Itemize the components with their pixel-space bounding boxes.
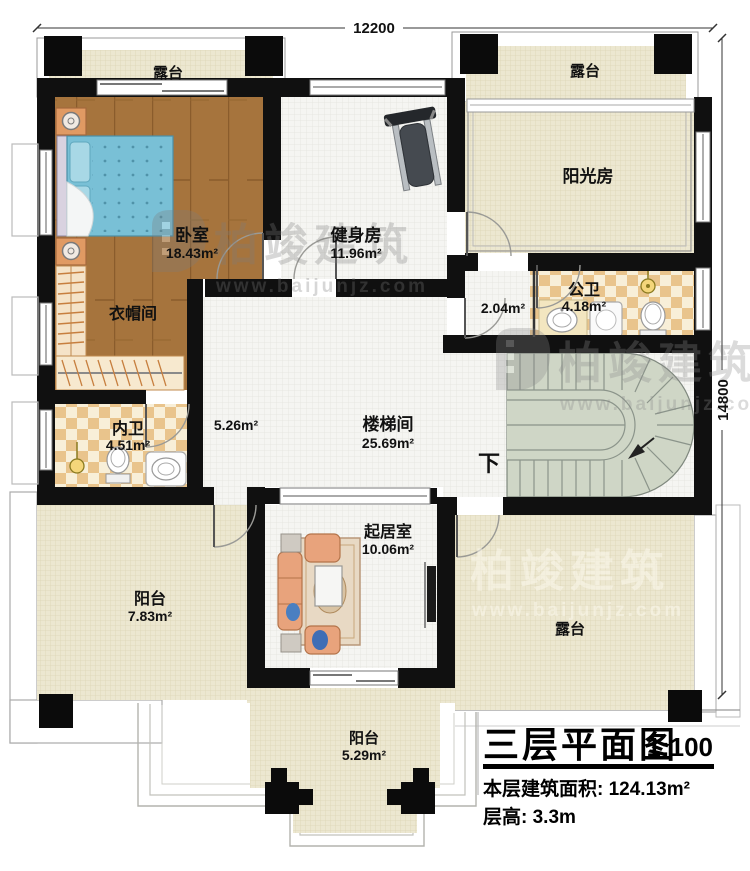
gym-window	[310, 80, 445, 95]
nightstand-bottom	[56, 238, 86, 265]
floor-plan-drawing: 柏竣建筑 www.baijunjz.com 柏竣建筑 www.baijunjz.…	[0, 0, 750, 871]
room-label-terrace-top-left: 露台	[153, 64, 183, 82]
cloakroom-window-left	[12, 297, 52, 375]
svg-text:柏竣建筑: 柏竣建筑	[214, 221, 414, 270]
stair-hall-floor	[203, 297, 447, 487]
room-label-living-room: 起居室	[363, 522, 412, 541]
floor-area-line: 本层建筑面积: 124.13m²	[483, 777, 690, 800]
balcony-bottom-floor	[138, 688, 476, 846]
room-area-stair-hall: 25.69m²	[362, 435, 414, 451]
plan-scale: 1:100	[647, 732, 714, 762]
room-area-corridor: 5.26m²	[214, 417, 259, 433]
room-area-public-bath: 4.18m²	[562, 298, 607, 314]
room-area-vestibule: 2.04m²	[481, 300, 526, 316]
terrace-sliding-door	[97, 80, 227, 95]
sunroom-top-glass	[467, 99, 694, 112]
room-label-terrace-top-right: 露台	[570, 62, 600, 80]
room-area-living-room: 10.06m²	[362, 541, 414, 557]
svg-text:www.baijunjz.com: www.baijunjz.com	[215, 276, 428, 297]
bedroom-window-left	[12, 144, 52, 236]
living-room-sliding-door	[310, 671, 398, 685]
stair-direction-label: 下	[478, 451, 500, 476]
room-area-gym: 11.96m²	[330, 245, 382, 261]
room-label-balcony-bottom: 阳台	[349, 729, 379, 747]
closet-shelving	[56, 266, 86, 356]
room-label-public-bath: 公卫	[568, 281, 600, 299]
room-area-balcony-left: 7.83m²	[128, 608, 173, 624]
room-label-private-bath: 内卫	[112, 419, 144, 438]
svg-text:www.baijunjz.com: www.baijunjz.com	[471, 600, 684, 621]
watermark-bottom: 柏竣建筑 www.baijunjz.com	[470, 547, 684, 621]
nightstand-top	[56, 108, 86, 135]
living-room-top-window	[280, 488, 430, 504]
room-label-cloakroom: 衣帽间	[109, 304, 157, 323]
room-area-private-bath: 4.51m²	[106, 437, 151, 453]
room-label-sunroom: 阳光房	[563, 166, 614, 186]
room-label-gym: 健身房	[331, 225, 382, 245]
svg-text:12200: 12200	[353, 20, 395, 37]
room-label-balcony-left: 阳台	[134, 589, 166, 608]
floor-height-line: 层高: 3.3m	[483, 805, 576, 828]
wardrobe-rack	[56, 356, 184, 390]
room-area-bedroom: 18.43m²	[166, 245, 218, 261]
title-underline	[483, 764, 714, 769]
title-block: 三层平面图 1:100 本层建筑面积: 124.13m² 层高: 3.3m	[483, 724, 714, 828]
room-label-stair-hall: 楼梯间	[363, 414, 414, 434]
floor-plan-page: 柏竣建筑 www.baijunjz.com 柏竣建筑 www.baijunjz.…	[0, 0, 750, 871]
room-label-terrace-bottom-right: 露台	[555, 620, 585, 638]
sunroom-window-right	[696, 132, 710, 222]
room-area-balcony-bottom: 5.29m²	[342, 747, 387, 763]
public-bath-window-right	[696, 268, 710, 330]
room-label-bedroom: 卧室	[175, 225, 209, 245]
svg-text:柏竣建筑: 柏竣建筑	[470, 547, 670, 596]
svg-text:14800: 14800	[715, 379, 732, 421]
